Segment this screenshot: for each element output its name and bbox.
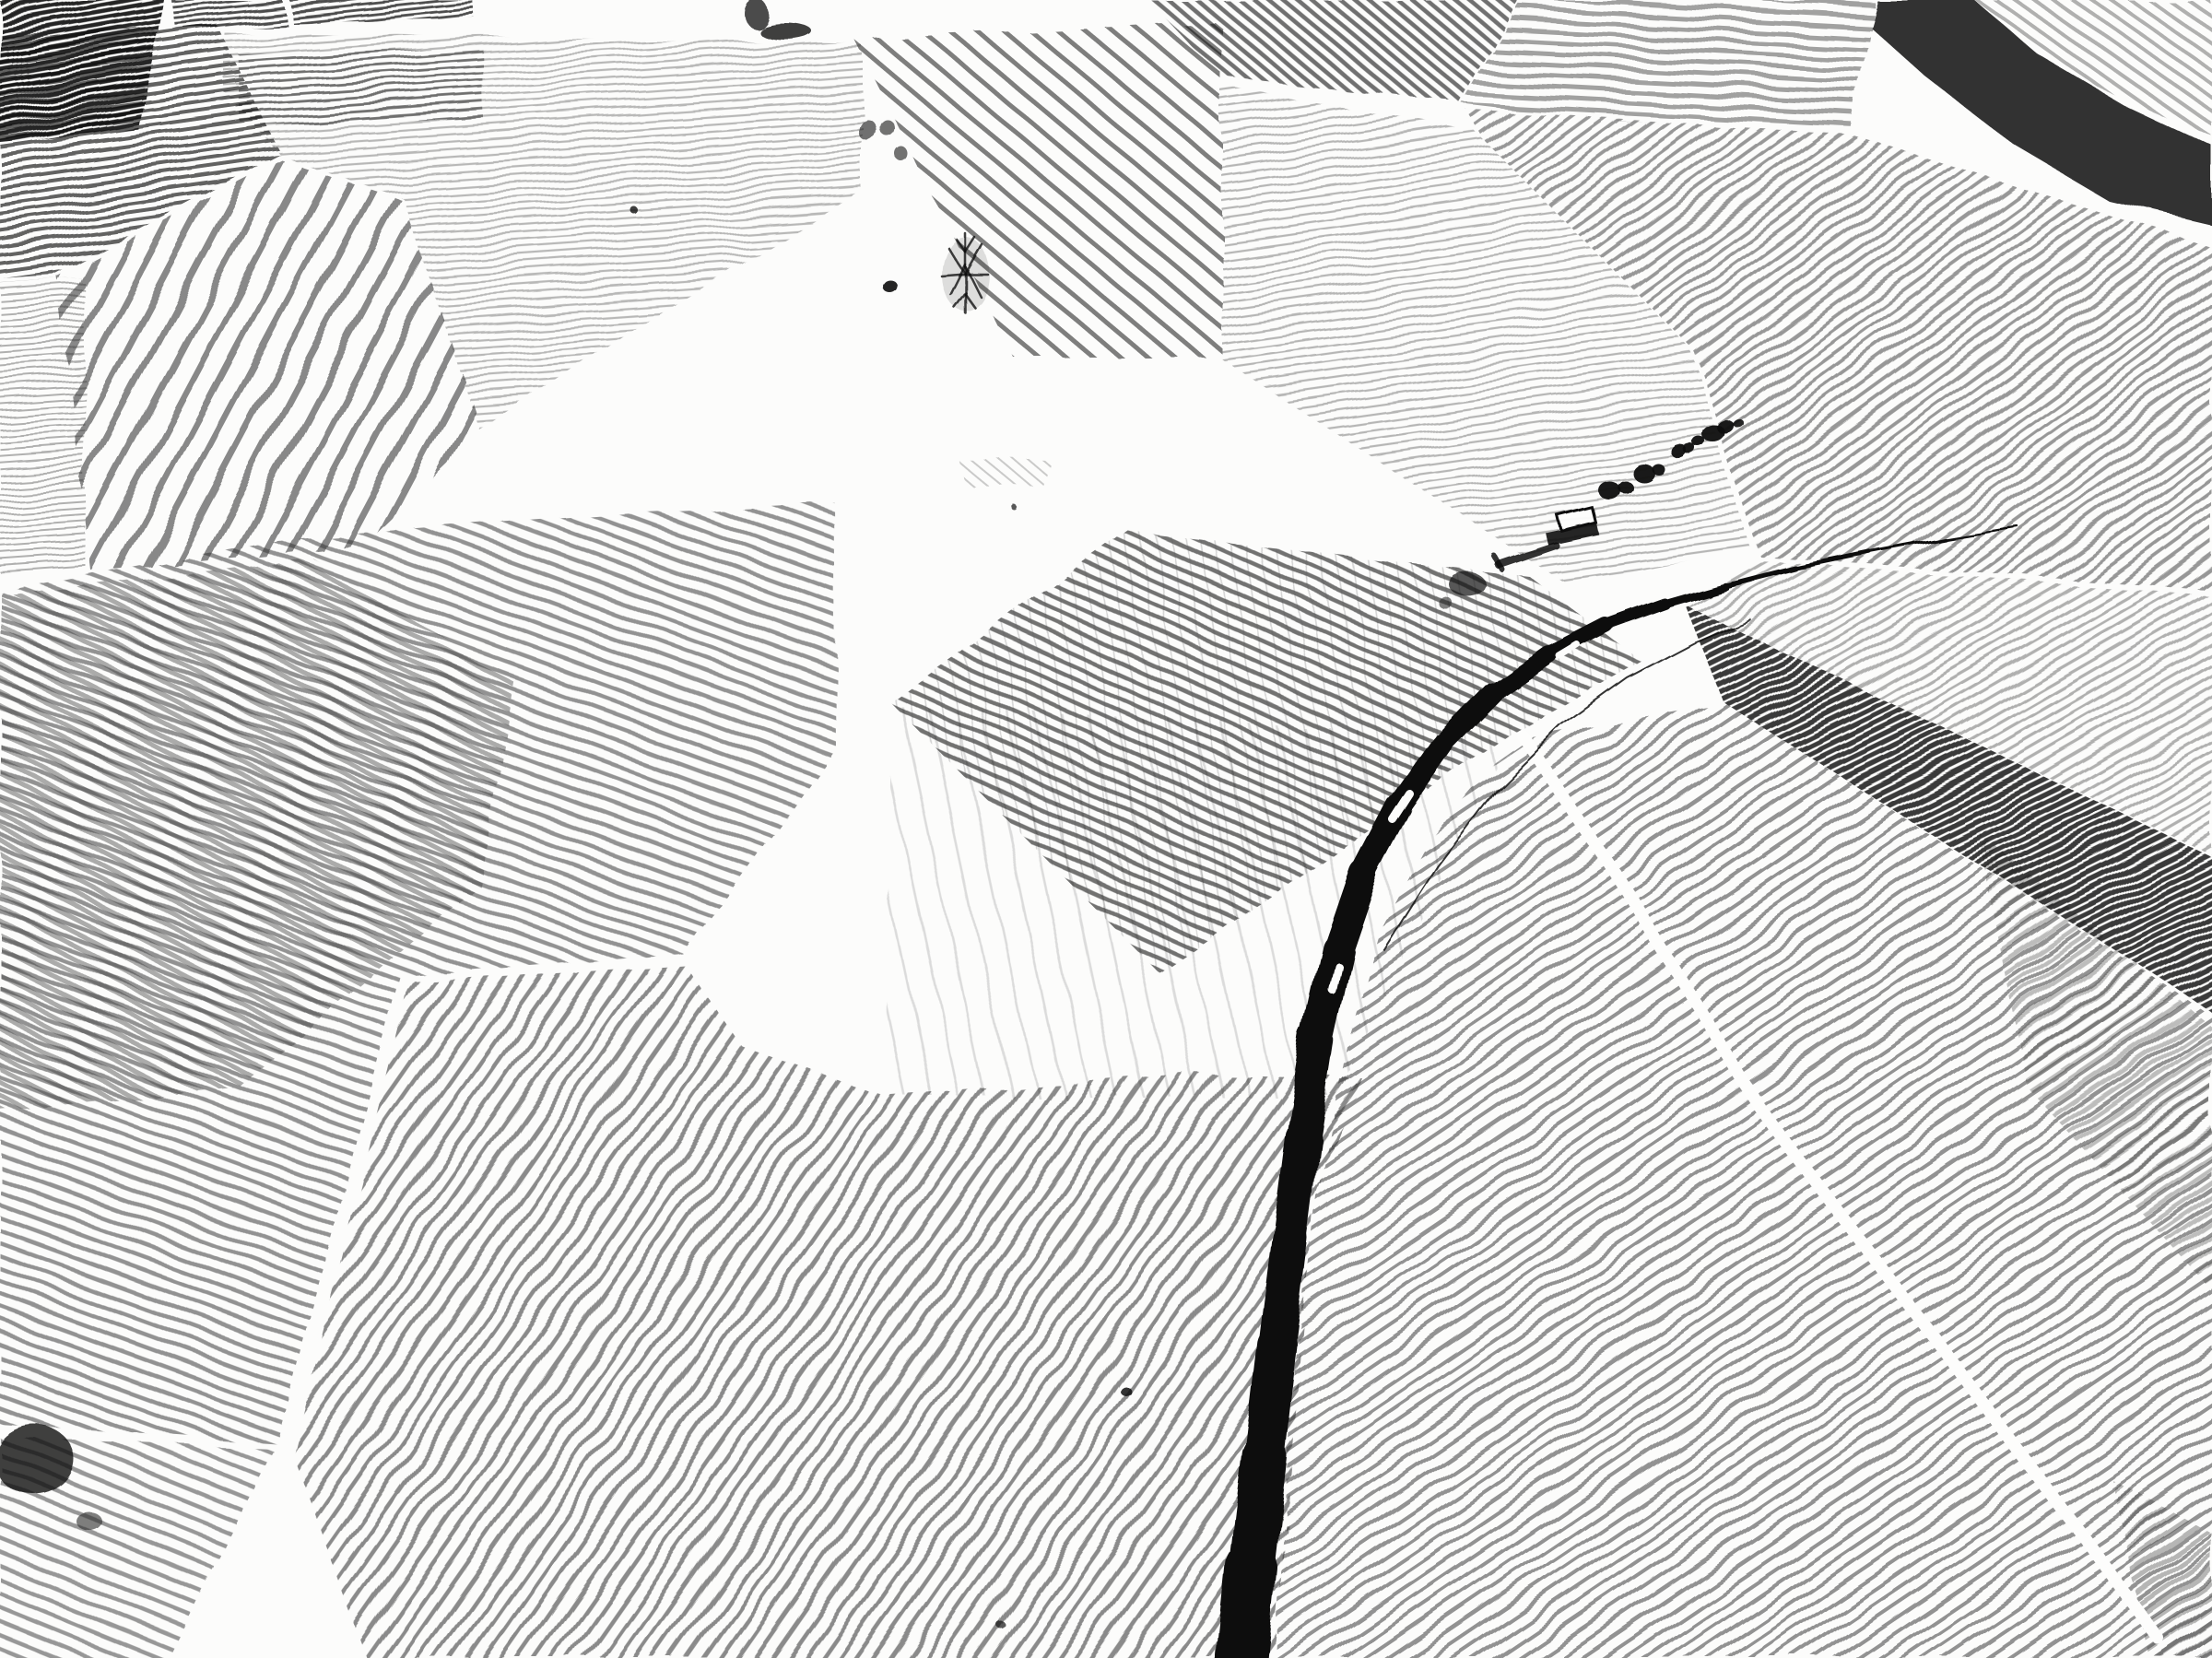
bale-10 <box>1735 420 1746 429</box>
bale-1 <box>1599 482 1621 500</box>
dark-dot-c <box>1119 1385 1130 1394</box>
large-bare-tree <box>942 234 990 313</box>
field-terraces <box>1462 0 1875 131</box>
road-segment <box>1606 604 1665 625</box>
field-fragment-south <box>959 459 1053 488</box>
bale-2 <box>1618 481 1633 494</box>
bale-4 <box>1652 464 1665 475</box>
dark-dot-b <box>630 206 638 214</box>
dark-dot-a <box>883 280 898 293</box>
field-top-strip-b <box>289 0 476 22</box>
scene-svg <box>0 0 2212 1658</box>
tree-shadow <box>758 22 811 39</box>
bush-c <box>896 147 909 162</box>
field-north-darker-band <box>238 48 485 125</box>
sw-corner-blob-small <box>77 1513 103 1532</box>
field-top-strip-a <box>171 0 286 28</box>
bale-9 <box>1717 420 1735 435</box>
tree-canopy-haze <box>942 238 990 312</box>
aerial-photograph-vineyard-snow <box>0 0 2212 1658</box>
photo-content <box>0 0 2212 1658</box>
dark-dot-e <box>995 1620 1005 1628</box>
dark-dot-d <box>1014 507 1019 512</box>
mid-bush <box>1449 572 1486 596</box>
field-center-parallelogram <box>855 20 1222 358</box>
small-tree-top <box>744 0 768 28</box>
bush-a <box>858 119 877 141</box>
bush-b <box>880 120 895 136</box>
mid-bush-small <box>1436 595 1451 606</box>
vehicle-hook <box>1495 557 1502 570</box>
field-parcels <box>0 0 2212 1658</box>
bale-3 <box>1632 464 1654 482</box>
